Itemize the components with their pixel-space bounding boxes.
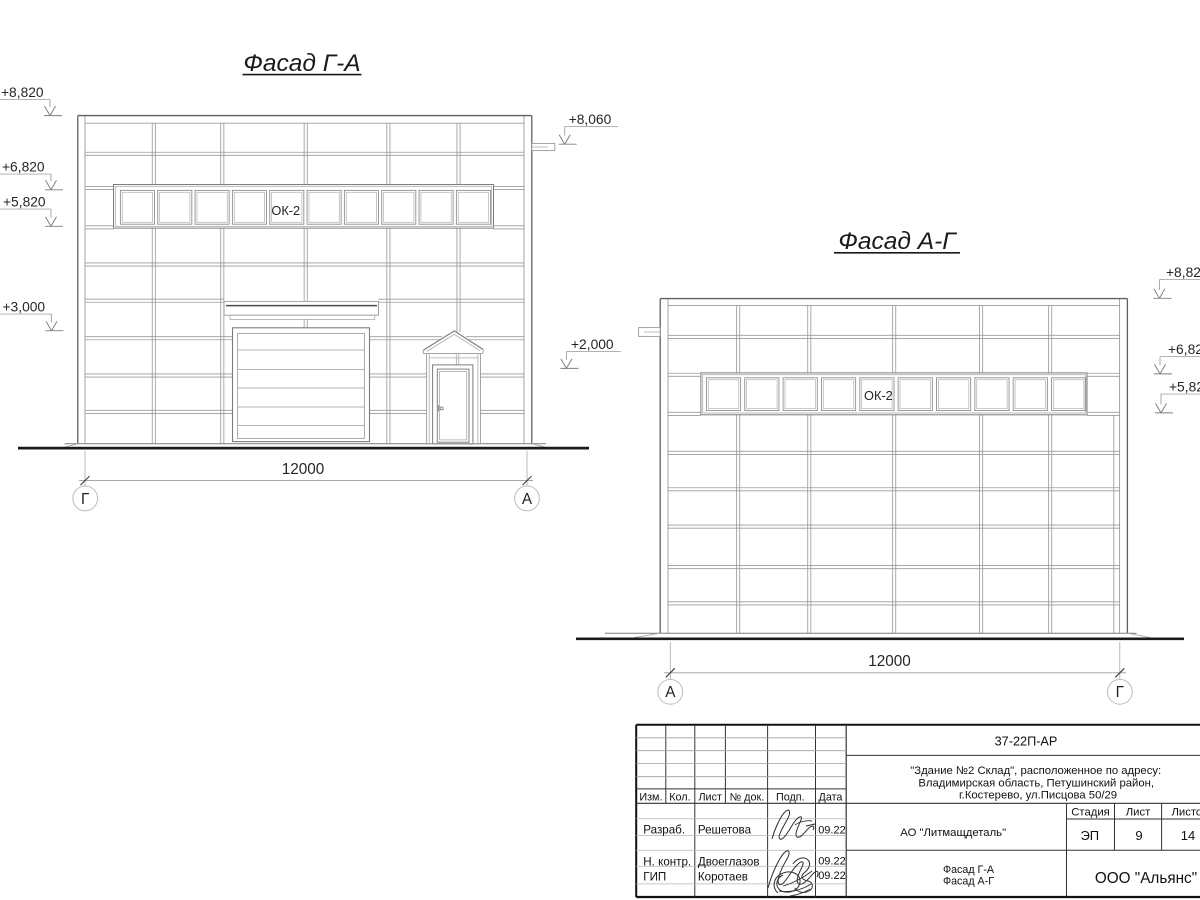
svg-text:Стадия: Стадия xyxy=(1071,807,1110,819)
svg-text:09.22: 09.22 xyxy=(818,856,846,868)
svg-text:Фасад Г-А: Фасад Г-А xyxy=(943,864,995,876)
svg-text:Подп.: Подп. xyxy=(776,792,805,804)
svg-text:Лист: Лист xyxy=(698,792,722,804)
svg-text:12000: 12000 xyxy=(282,461,325,478)
svg-text:Разраб.: Разраб. xyxy=(643,823,685,836)
svg-text:ОК-2: ОК-2 xyxy=(271,203,300,218)
svg-text:г.Костерево, ул.Писцова 50/29: г.Костерево, ул.Писцова 50/29 xyxy=(959,789,1117,801)
svg-text:Листов: Листов xyxy=(1172,807,1200,819)
svg-text:+2,000: +2,000 xyxy=(571,337,614,352)
svg-text:Коротаев: Коротаев xyxy=(698,870,748,883)
svg-text:Владимирская область, Петушинс: Владимирская область, Петушинский район, xyxy=(918,778,1154,790)
svg-text:09.22: 09.22 xyxy=(818,870,846,882)
svg-text:+8,820: +8,820 xyxy=(1166,265,1200,280)
svg-text:09.22: 09.22 xyxy=(818,824,846,836)
svg-text:А: А xyxy=(522,491,533,508)
svg-text:9: 9 xyxy=(1135,828,1142,843)
svg-text:ООО "Альянс": ООО "Альянс" xyxy=(1095,870,1197,887)
svg-text:ГИП: ГИП xyxy=(643,870,666,883)
svg-text:Изм.: Изм. xyxy=(639,792,662,804)
svg-text:12000: 12000 xyxy=(868,653,911,670)
svg-text:+5,820: +5,820 xyxy=(3,195,46,210)
svg-text:"Здание №2 Склад", расположенн: "Здание №2 Склад", расположенное по адре… xyxy=(910,765,1161,777)
svg-text:Фасад А-Г: Фасад А-Г xyxy=(838,228,957,255)
svg-text:Г: Г xyxy=(81,491,89,508)
svg-text:Лист: Лист xyxy=(1126,807,1151,819)
svg-text:+6,820: +6,820 xyxy=(1168,342,1200,357)
svg-text:№ док.: № док. xyxy=(730,792,765,804)
svg-text:Кол.: Кол. xyxy=(669,792,690,804)
svg-text:Фасад А-Г: Фасад А-Г xyxy=(943,876,994,888)
svg-text:+3,000: +3,000 xyxy=(3,300,46,315)
svg-text:Н. контр.: Н. контр. xyxy=(643,856,691,869)
svg-text:Г: Г xyxy=(1116,684,1124,701)
svg-text:А: А xyxy=(665,684,676,701)
svg-text:ЭП: ЭП xyxy=(1080,828,1099,843)
svg-text:ОК-2: ОК-2 xyxy=(864,388,893,403)
svg-text:Двоеглазов: Двоеглазов xyxy=(698,856,760,869)
svg-text:+5,820: +5,820 xyxy=(1169,380,1200,395)
svg-text:37-22П-АР: 37-22П-АР xyxy=(995,735,1058,749)
svg-text:+8,820: +8,820 xyxy=(1,85,44,100)
svg-text:Дата: Дата xyxy=(819,792,843,804)
svg-text:14: 14 xyxy=(1181,828,1195,843)
svg-text:Решетова: Решетова xyxy=(698,823,752,836)
svg-text:+8,060: +8,060 xyxy=(569,112,612,127)
svg-text:+6,820: +6,820 xyxy=(2,160,45,175)
svg-text:Фасад Г-А: Фасад Г-А xyxy=(243,50,360,77)
svg-text:АО "Литмащдеталь": АО "Литмащдеталь" xyxy=(900,827,1006,839)
